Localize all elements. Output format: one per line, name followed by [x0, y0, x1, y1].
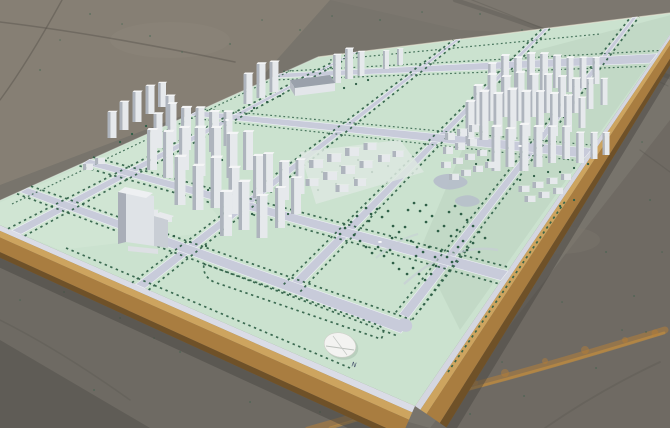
photo-architectural-model: N [0, 0, 670, 428]
tower [397, 48, 404, 65]
scene-canvas: N [0, 0, 670, 428]
low-rise-block [345, 148, 361, 156]
tower [163, 130, 174, 178]
tower [383, 50, 390, 69]
tower [603, 132, 611, 155]
low-rise-block [467, 139, 478, 146]
low-rise-block [539, 192, 552, 198]
low-rise-block [364, 143, 379, 150]
low-rise-block [393, 151, 406, 157]
tower [333, 54, 342, 83]
slab-side [118, 190, 126, 244]
tower [466, 100, 476, 144]
tower [270, 61, 280, 93]
low-rise-block [461, 170, 472, 176]
tower [591, 132, 599, 159]
tower [263, 152, 274, 192]
low-rise-block [477, 150, 488, 156]
low-rise-block [465, 154, 476, 160]
low-rise-block [306, 179, 321, 186]
tower [146, 85, 156, 114]
low-rise-block [341, 166, 357, 174]
tower [601, 78, 609, 105]
tower [239, 180, 252, 230]
vehicle-fleck [518, 145, 521, 147]
low-rise-block [457, 129, 468, 136]
tower [587, 78, 595, 110]
tower [244, 73, 254, 105]
tower [576, 132, 585, 164]
low-rise-block [473, 166, 484, 172]
tower [120, 101, 130, 130]
low-rise-block [360, 161, 375, 168]
vehicle-fleck [378, 241, 381, 243]
low-rise-block [485, 162, 496, 168]
low-rise-block [441, 162, 452, 168]
low-rise-block [327, 154, 343, 162]
tower [243, 130, 254, 170]
tower [133, 91, 143, 123]
low-rise-block [519, 186, 532, 192]
tower [108, 111, 118, 138]
low-rise-block [553, 188, 564, 194]
tower [593, 57, 601, 84]
tower [220, 190, 234, 236]
low-rise-block [533, 182, 546, 188]
tower [358, 51, 366, 76]
low-rise-block [83, 164, 94, 170]
low-rise-block [561, 174, 572, 180]
low-rise-block [547, 178, 560, 184]
tower [548, 125, 557, 163]
tower [193, 164, 206, 210]
tower [147, 128, 158, 170]
tower [253, 154, 264, 198]
low-rise-block [469, 125, 480, 132]
low-rise-block [309, 160, 325, 168]
low-rise-block [443, 147, 454, 154]
tower [506, 127, 516, 167]
low-rise-block [525, 196, 538, 202]
low-rise-block [449, 174, 460, 180]
low-rise-block [354, 179, 368, 186]
low-rise-block [453, 158, 464, 164]
low-rise-block [95, 158, 106, 164]
tower [562, 125, 571, 159]
low-rise-block [455, 143, 466, 150]
tower [257, 194, 270, 238]
tower [579, 97, 587, 129]
slab-wing [154, 216, 168, 248]
tower [291, 176, 302, 214]
slab-front [126, 190, 154, 246]
pavement-sheen [110, 22, 230, 58]
vehicle-fleck [229, 215, 232, 217]
tower [175, 155, 188, 205]
tower [480, 90, 490, 140]
tower [257, 62, 267, 98]
low-rise-block [336, 185, 351, 192]
tower [275, 186, 286, 228]
tower [534, 125, 544, 167]
tower [580, 57, 588, 89]
vehicle-fleck [225, 119, 228, 121]
tower [345, 48, 354, 80]
low-rise-block [445, 133, 456, 140]
low-rise-block [378, 155, 392, 162]
low-rise-block [323, 172, 339, 180]
